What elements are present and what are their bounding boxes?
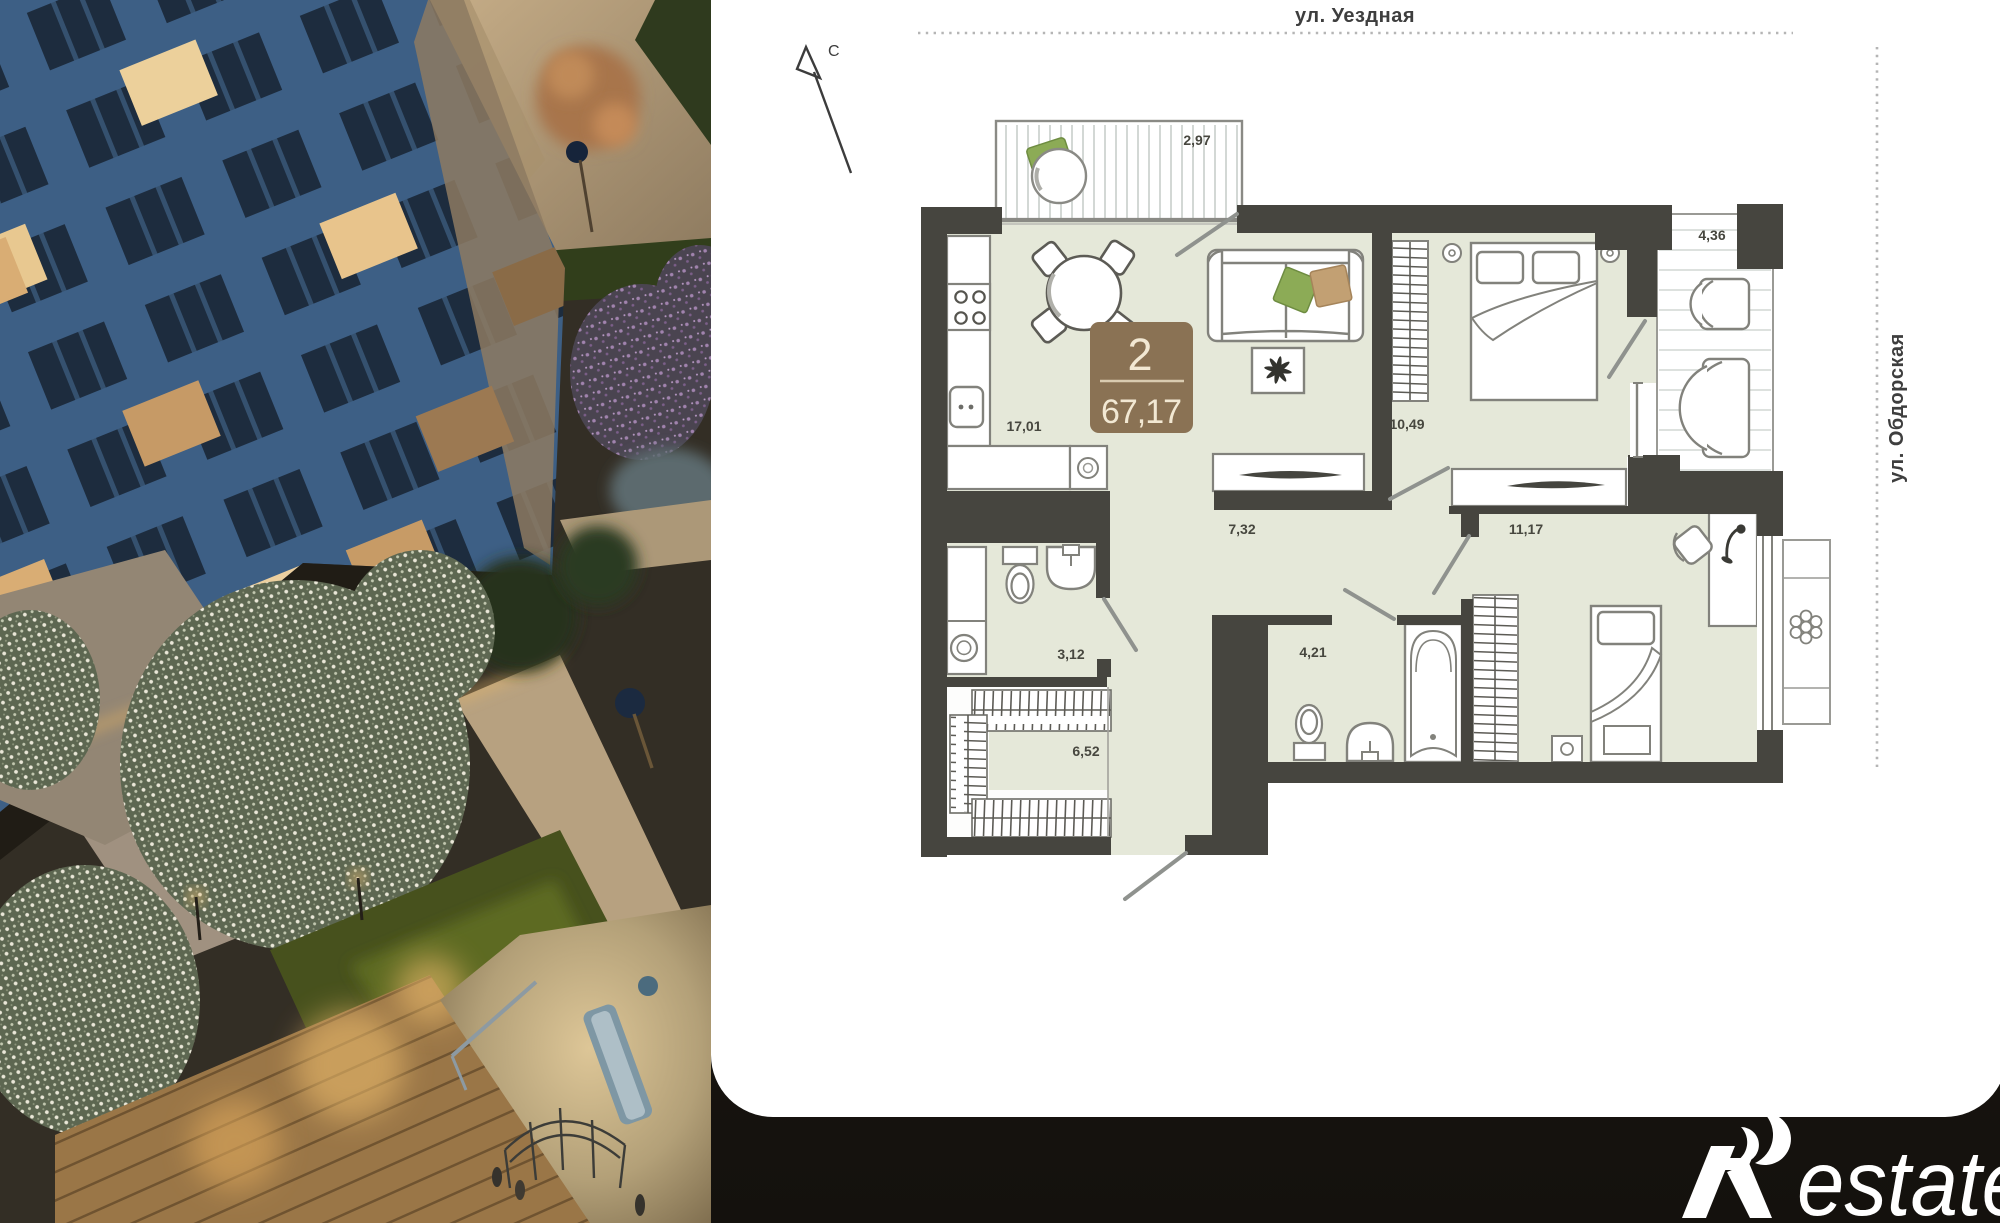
svg-text:estate: estate [1797, 1131, 2000, 1223]
